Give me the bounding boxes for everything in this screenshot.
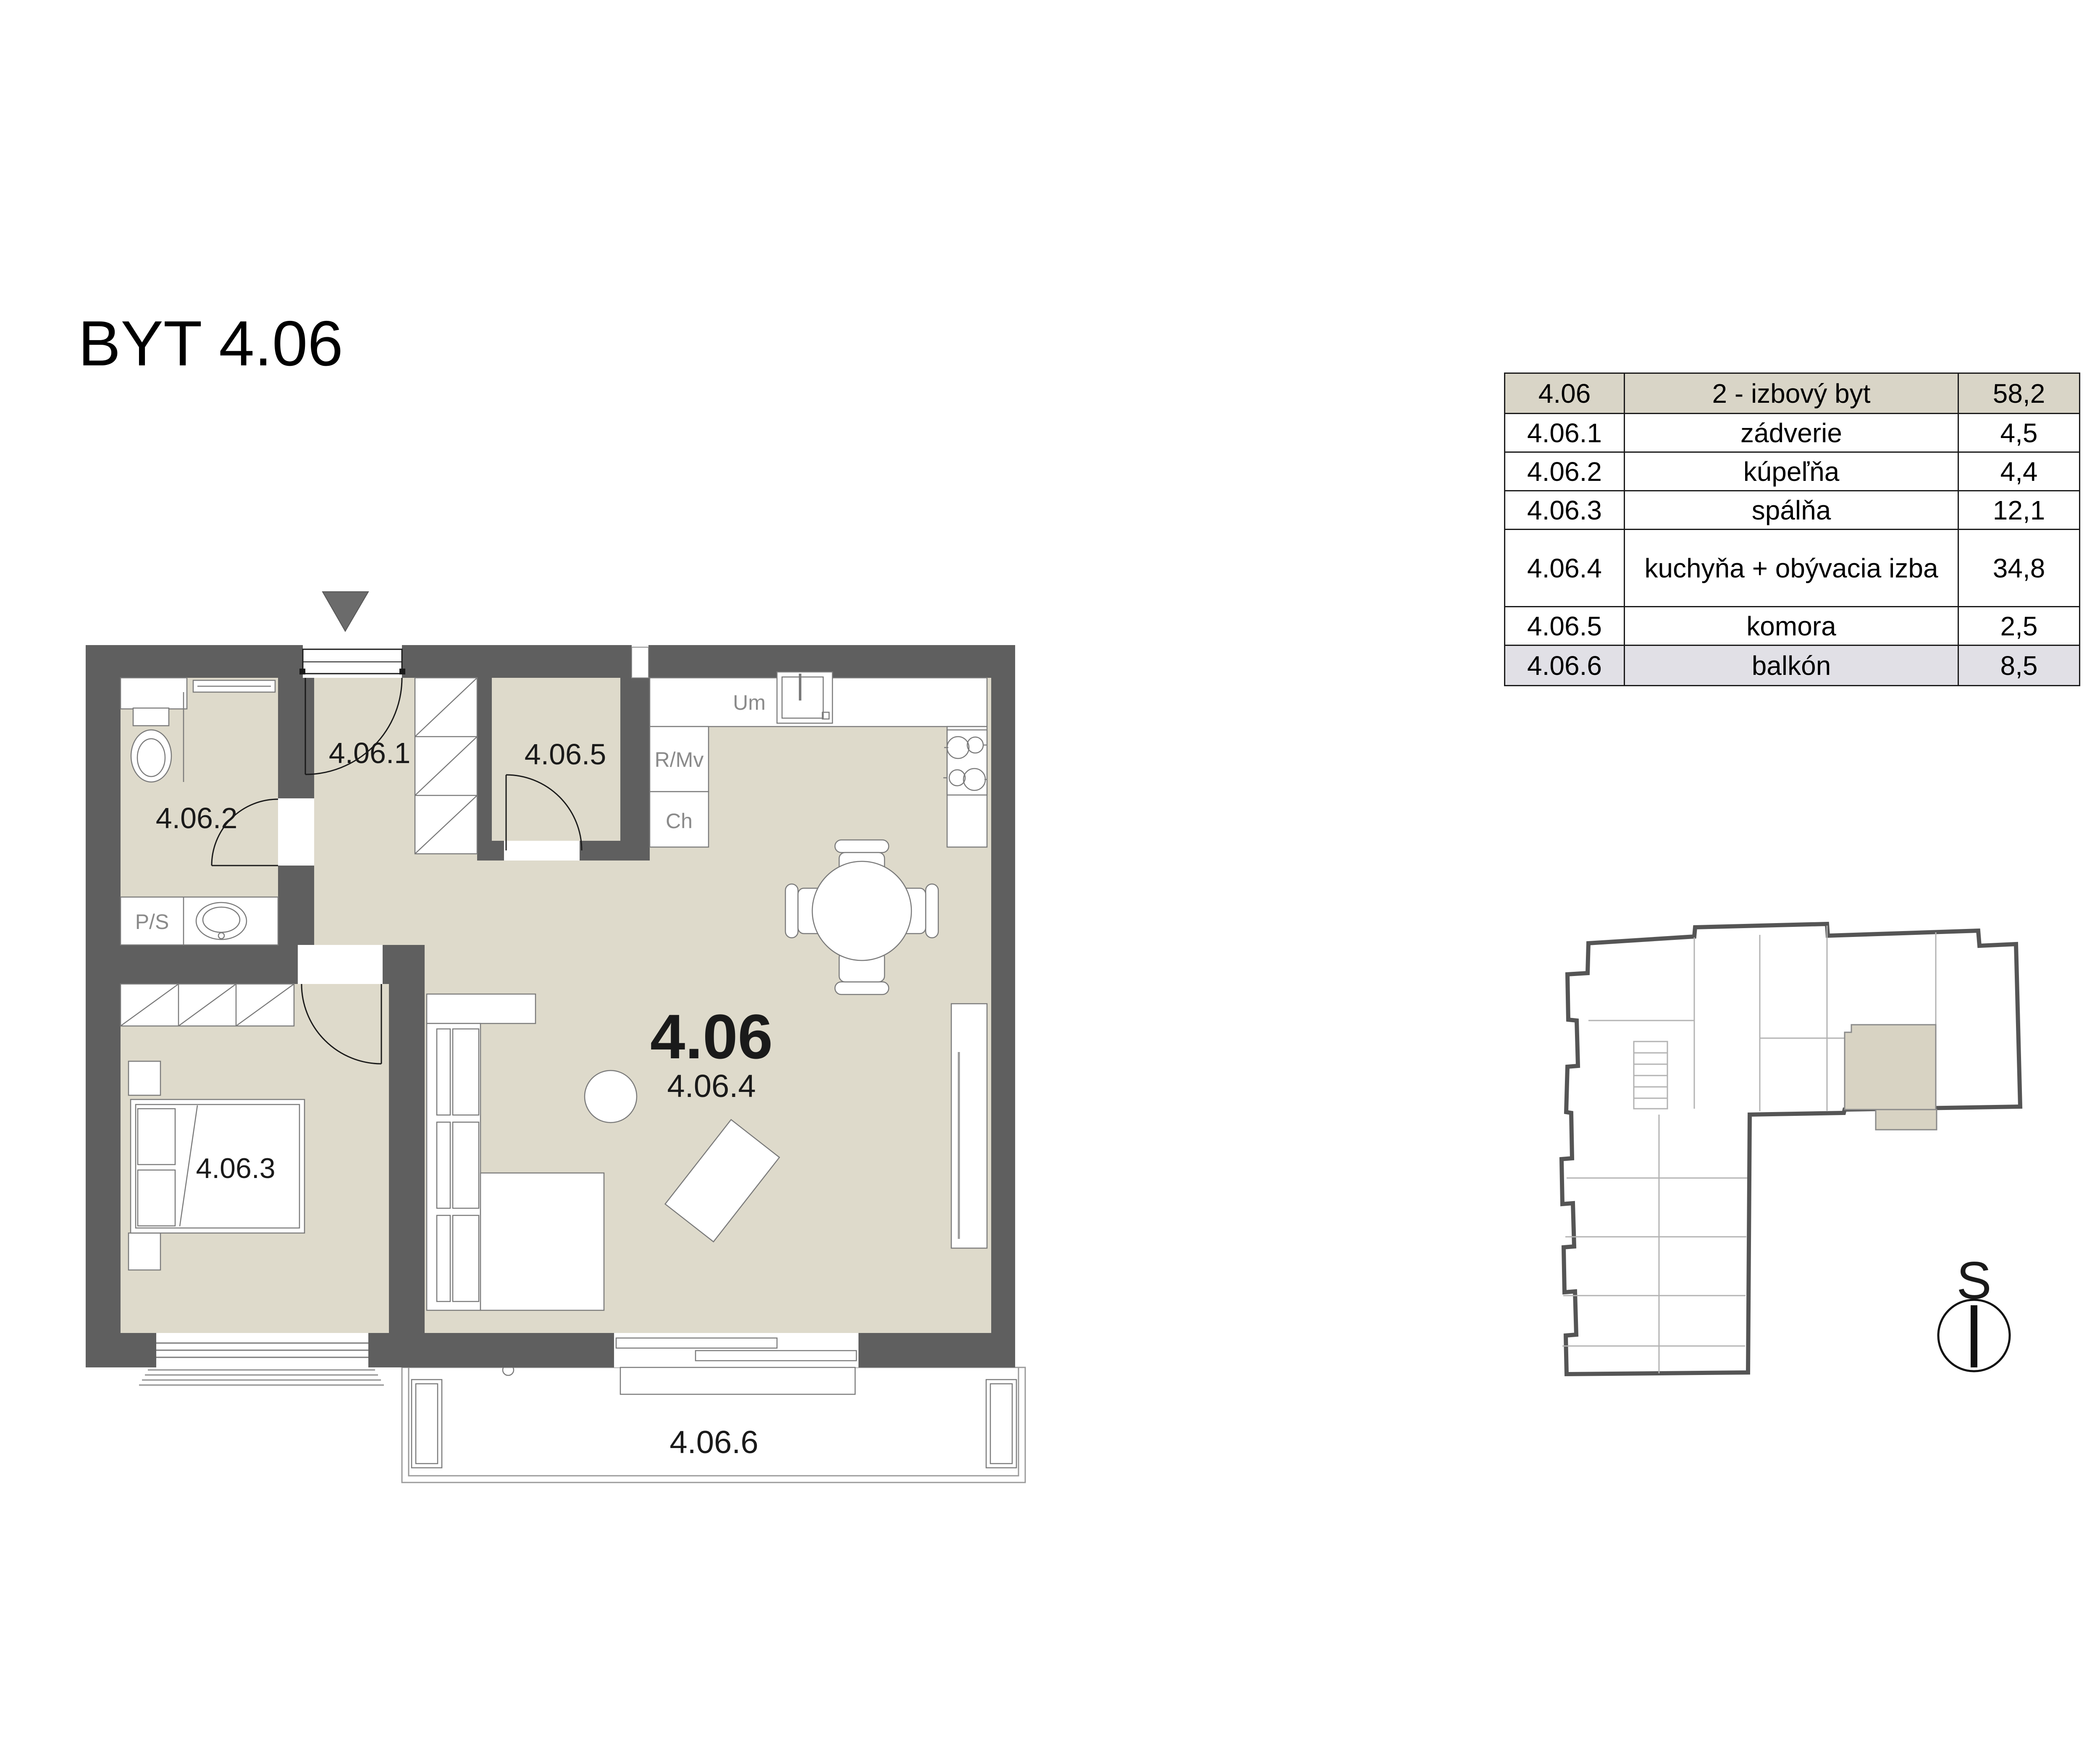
cell-id: 4.06: [1505, 373, 1625, 414]
unit-number-label: 4.06: [650, 1001, 773, 1072]
wall-niche: [632, 647, 648, 678]
toilet: [131, 708, 171, 782]
compass-needle-icon: [1971, 1305, 1977, 1367]
kitchen-sink: [777, 672, 832, 723]
kitchen-living-label: 4.06.4: [667, 1068, 756, 1104]
bathroom-cabinet: [121, 678, 187, 709]
cooktop: [943, 730, 987, 795]
cell-name: 2 - izbový byt: [1625, 373, 1958, 414]
dining-table: [812, 861, 911, 960]
table-row: 4.06.1 zádverie 4,5: [1505, 414, 2080, 452]
washer-dryer-label: P/S: [135, 910, 169, 934]
table-row: 4.06.3 spálňa 12,1: [1505, 491, 2080, 530]
bedroom-label: 4.06.3: [196, 1152, 275, 1184]
table-row: 4.06.5 komora 2,5: [1505, 607, 2080, 645]
bathroom-sink: [196, 903, 247, 939]
table-row: 4.06.2 kúpeľňa 4,4: [1505, 452, 2080, 491]
cell-name: zádverie: [1625, 414, 1958, 452]
bedroom-window: [156, 1333, 368, 1367]
cell-area: 4,4: [1958, 452, 2080, 491]
cell-area: 12,1: [1958, 491, 2080, 530]
cell-name: spálňa: [1625, 491, 1958, 530]
bedroom-wardrobe: [121, 984, 294, 1026]
compass: S: [1938, 1251, 2010, 1371]
kitchen-sink-label: Um: [733, 691, 766, 714]
area-legend-table: 4.06 2 - izbový byt 58,2 4.06.1 zádverie…: [1504, 373, 2080, 686]
floor-plan: 4.06.6: [63, 567, 1071, 1533]
pantry-label: 4.06.5: [525, 738, 606, 771]
cell-id: 4.06.3: [1505, 491, 1625, 530]
unit-highlight: [1845, 1025, 1937, 1130]
nightstand: [129, 1061, 160, 1095]
page-title: BYT 4.06: [78, 312, 343, 375]
bathroom-label: 4.06.2: [156, 802, 238, 834]
entrance-arrow-icon: [323, 592, 368, 631]
bedroom-window-sill: [139, 1370, 384, 1385]
sliding-door: [614, 1333, 858, 1394]
cell-id: 4.06.1: [1505, 414, 1625, 452]
coffee-table: [585, 1070, 637, 1123]
cell-area: 34,8: [1958, 530, 2080, 607]
nightstand: [129, 1233, 160, 1270]
building-overview: S: [1533, 916, 2058, 1398]
cell-id: 4.06.5: [1505, 607, 1625, 645]
cell-id: 4.06.6: [1505, 645, 1625, 686]
fridge-label: Ch: [666, 809, 693, 833]
table-row-balcony: 4.06.6 balkón 8,5: [1505, 645, 2080, 686]
balcony-step: [620, 1367, 855, 1394]
cell-area: 8,5: [1958, 645, 2080, 686]
cell-name: kúpeľňa: [1625, 452, 1958, 491]
page: BYT 4.06 4.06 2 - izbový byt 58,2 4.06.1…: [0, 0, 2100, 1750]
entry-label: 4.06.1: [329, 737, 411, 769]
tv-cabinet: [951, 1004, 987, 1248]
table-row-unit: 4.06 2 - izbový byt 58,2: [1505, 373, 2080, 414]
cell-id: 4.06.4: [1505, 530, 1625, 607]
oven-microwave-label: R/Mv: [655, 748, 704, 771]
hall-wardrobe: [415, 678, 477, 854]
washer-sink-counter: P/S: [121, 897, 278, 945]
balcony-label: 4.06.6: [669, 1425, 758, 1460]
cell-name: komora: [1625, 607, 1958, 645]
table-row: 4.06.4 kuchyňa + obývacia izba 34,8: [1505, 530, 2080, 607]
cell-name: balkón: [1625, 645, 1958, 686]
cell-area: 4,5: [1958, 414, 2080, 452]
cell-area: 2,5: [1958, 607, 2080, 645]
cell-id: 4.06.2: [1505, 452, 1625, 491]
cell-name: kuchyňa + obývacia izba: [1625, 530, 1958, 607]
cell-area: 58,2: [1958, 373, 2080, 414]
